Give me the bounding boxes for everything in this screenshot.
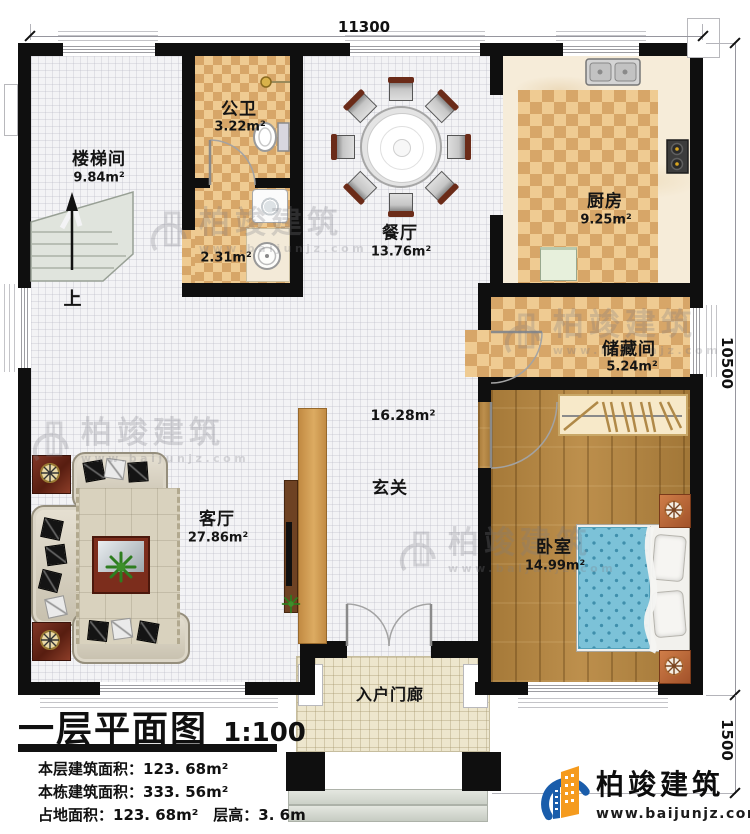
fridge — [540, 247, 577, 281]
label-bedroom-area: 14.99m² — [525, 560, 585, 573]
label-kitchen: 厨房 — [587, 193, 623, 212]
dining-chair — [389, 79, 413, 101]
porch-step-2 — [288, 805, 488, 822]
label-bathroom-area: 3.22m² — [214, 121, 265, 134]
kitchen-floor — [518, 90, 658, 283]
wall-kitchen-storage — [478, 283, 703, 297]
dining-table — [360, 106, 442, 188]
wall-bathroom-door-jamb-west — [195, 178, 210, 188]
label-porch: 入户门廊 — [356, 686, 424, 704]
wall-foyer-west — [300, 641, 315, 695]
dining-chair — [447, 135, 469, 159]
bedroom-door-floor — [478, 402, 491, 468]
company-logo-icon — [534, 762, 590, 822]
dining-table-center — [393, 139, 411, 157]
label-dining: 餐厅 — [382, 225, 418, 244]
dimension-right: 10500 — [718, 337, 736, 389]
bed-pillow — [651, 590, 687, 639]
sofa-pillow — [127, 461, 148, 482]
window-storage — [690, 308, 703, 374]
dining-chair — [389, 193, 413, 215]
side-table-north — [32, 455, 71, 494]
bed-pillow — [651, 534, 687, 583]
label-foyer-area: 16.28m² — [370, 409, 435, 423]
company-logo: 柏竣建筑 www.baijunjz.com — [534, 762, 750, 822]
window-sill-east — [705, 305, 719, 377]
wall-bathroom-west — [182, 43, 195, 230]
window-sill-west-upper — [4, 84, 18, 136]
sofa-pillow — [45, 544, 68, 567]
label-laundry-area: 2.31m² — [200, 252, 251, 265]
window-bedroom — [528, 682, 658, 695]
laundry-counter — [246, 228, 290, 282]
sofa-pillow — [111, 618, 134, 641]
tv-screen — [286, 522, 292, 586]
window-sill-south-east — [518, 697, 668, 709]
label-storage: 储藏间 — [602, 341, 656, 360]
wall-storage-west — [478, 297, 491, 330]
wardrobe — [558, 394, 688, 436]
label-bathroom: 公卫 — [221, 101, 257, 120]
wall-west — [18, 43, 31, 695]
label-storage-area: 5.24m² — [606, 361, 657, 374]
wall-entry-jamb-east — [431, 641, 478, 658]
storage-door-floor — [465, 330, 491, 377]
sofa-pillow — [82, 459, 105, 482]
storage-floor — [491, 297, 690, 377]
floorplan-canvas: 柏竣建筑www.baijunjz.com 柏竣建筑www.baijunjz.co… — [0, 0, 750, 834]
window-west — [18, 288, 31, 368]
nightstand — [659, 650, 691, 684]
dimension-line-top — [30, 36, 703, 37]
wall-bathroom-east — [290, 43, 303, 297]
side-table-south — [32, 622, 71, 661]
company-logo-text: 柏竣建筑 www.baijunjz.com — [596, 763, 750, 822]
sofa-pillow — [40, 517, 64, 541]
dimension-porch: 1500 — [718, 719, 736, 761]
label-foyer: 玄关 — [372, 480, 408, 499]
wall-bathroom-door-jamb-east — [255, 178, 290, 188]
window-living — [100, 682, 245, 695]
porch-step-1 — [288, 789, 488, 805]
wall-kitchen-west-north — [490, 43, 503, 95]
company-website: www.baijunjz.com — [596, 806, 750, 822]
label-living-area: 27.86m² — [188, 532, 248, 545]
stat-footprint-height: 占地面积：123. 68m² 层高：3. 6m — [38, 804, 306, 825]
label-living: 客厅 — [199, 511, 235, 530]
bed-mattress — [578, 527, 650, 649]
sofa-pillow — [104, 458, 127, 481]
nightstand — [659, 494, 691, 528]
wall-bedroom-west — [478, 468, 491, 695]
washing-machine — [252, 189, 288, 223]
wall-kitchen-west-south — [490, 215, 503, 283]
porch-pillar-east — [462, 752, 501, 791]
window-stairwell — [63, 43, 155, 56]
window-kitchen — [563, 43, 639, 56]
laundry-opening-floor — [182, 230, 195, 283]
label-dining-area: 13.76m² — [371, 246, 431, 259]
label-stairwell-area: 9.84m² — [73, 172, 124, 185]
label-stairs-up: 上 — [64, 290, 83, 310]
window-dining — [350, 43, 480, 56]
window-sill-west — [3, 284, 18, 372]
dimension-top: 11300 — [338, 18, 390, 36]
wall-laundry-south — [182, 283, 303, 297]
label-kitchen-area: 9.25m² — [580, 214, 631, 227]
coffee-table-glass — [98, 541, 144, 572]
stat-floor-area: 本层建筑面积：123. 68m² — [38, 758, 228, 779]
dining-chair — [333, 135, 355, 159]
title-underline — [18, 744, 277, 752]
wall-bedroom-west-jamb — [478, 390, 491, 402]
stat-building-area: 本栋建筑面积：333. 56m² — [38, 781, 228, 802]
sofa-pillow — [87, 620, 109, 642]
window-sill-northeast — [687, 18, 720, 58]
porch-pillar-west — [286, 752, 325, 791]
foyer-partition — [298, 408, 327, 644]
label-bedroom: 卧室 — [536, 539, 572, 558]
sofa-pillow — [136, 620, 159, 643]
wall-storage-bedroom — [478, 377, 703, 390]
sofa-pillow — [44, 595, 68, 619]
label-stairwell: 楼梯间 — [72, 151, 126, 170]
company-name: 柏竣建筑 — [596, 763, 750, 803]
